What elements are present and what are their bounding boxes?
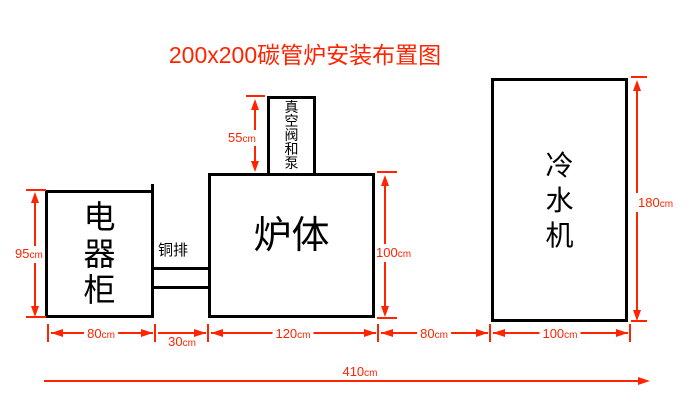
dim-label-180cm: 180cm (638, 196, 673, 211)
chiller-box: 冷水机 (491, 78, 628, 322)
copper-bar-line (154, 267, 208, 270)
dim-line (254, 108, 256, 130)
dim-tick (377, 317, 397, 319)
diagram-title: 200x200碳管炉安装布置图 (153, 36, 457, 70)
dim-tick (631, 76, 647, 78)
dim-label-95cm: 95cm (15, 247, 43, 262)
dim-tick (246, 95, 265, 97)
dim-tick (207, 324, 209, 342)
dim-label-120cm: 120cm (272, 327, 313, 342)
dim-arrow-right (141, 329, 153, 337)
furnace-label: 炉体 (253, 204, 329, 259)
dim-label-100cm-chiller: 100cm (539, 327, 580, 342)
dim-arrow-left (211, 329, 223, 337)
cabinet-corner-line (151, 184, 154, 190)
dim-arrow-down (251, 161, 259, 172)
dim-line (34, 263, 36, 308)
installation-layout-diagram: 200x200碳管炉安装布置图 电器柜 炉体 真空阀和泵 冷水机 铜排 95cm… (0, 0, 690, 412)
dim-line (44, 380, 642, 382)
dim-line (384, 262, 386, 307)
chiller-label: 冷水机 (544, 148, 575, 253)
dim-line (636, 89, 638, 193)
dim-tick (489, 324, 491, 342)
dim-tick (26, 189, 46, 191)
dim-tick (154, 324, 156, 342)
dim-arrow-right (638, 377, 650, 385)
dim-tick (377, 324, 379, 342)
cabinet-box: 电器柜 (45, 190, 154, 318)
dim-line (34, 201, 36, 246)
copper-bar-line (154, 286, 208, 289)
vacuum-pump-label: 真空阀和泵 (284, 101, 299, 171)
dim-arrow-left (51, 329, 63, 337)
copper-bar-label: 铜排 (158, 239, 188, 260)
dim-tick (377, 171, 397, 173)
dim-tick (26, 316, 46, 318)
furnace-box: 炉体 (208, 173, 375, 318)
dim-arrow-down (381, 306, 389, 317)
dim-arrow-right (364, 329, 376, 337)
dim-arrow-right (616, 329, 628, 337)
dim-label-80cm-gap: 80cm (417, 327, 451, 342)
dim-label-410cm: 410cm (342, 365, 377, 380)
dim-line (636, 212, 638, 311)
cabinet-label: 电器柜 (82, 199, 117, 309)
dim-label-80cm: 80cm (84, 327, 118, 342)
dim-label-30cm: 30cm (168, 335, 196, 350)
dim-line (384, 184, 386, 244)
dim-line (254, 146, 256, 162)
dim-tick (629, 324, 631, 342)
dim-tick (631, 320, 647, 322)
dim-tick (47, 324, 49, 342)
vacuum-pump-box: 真空阀和泵 (267, 96, 316, 173)
dim-arrow-left (381, 329, 393, 337)
dim-arrow-right (476, 329, 488, 337)
dim-label-55cm: 55cm (228, 131, 256, 146)
dim-label-100cm: 100cm (376, 246, 411, 261)
dim-arrow-left (493, 329, 505, 337)
